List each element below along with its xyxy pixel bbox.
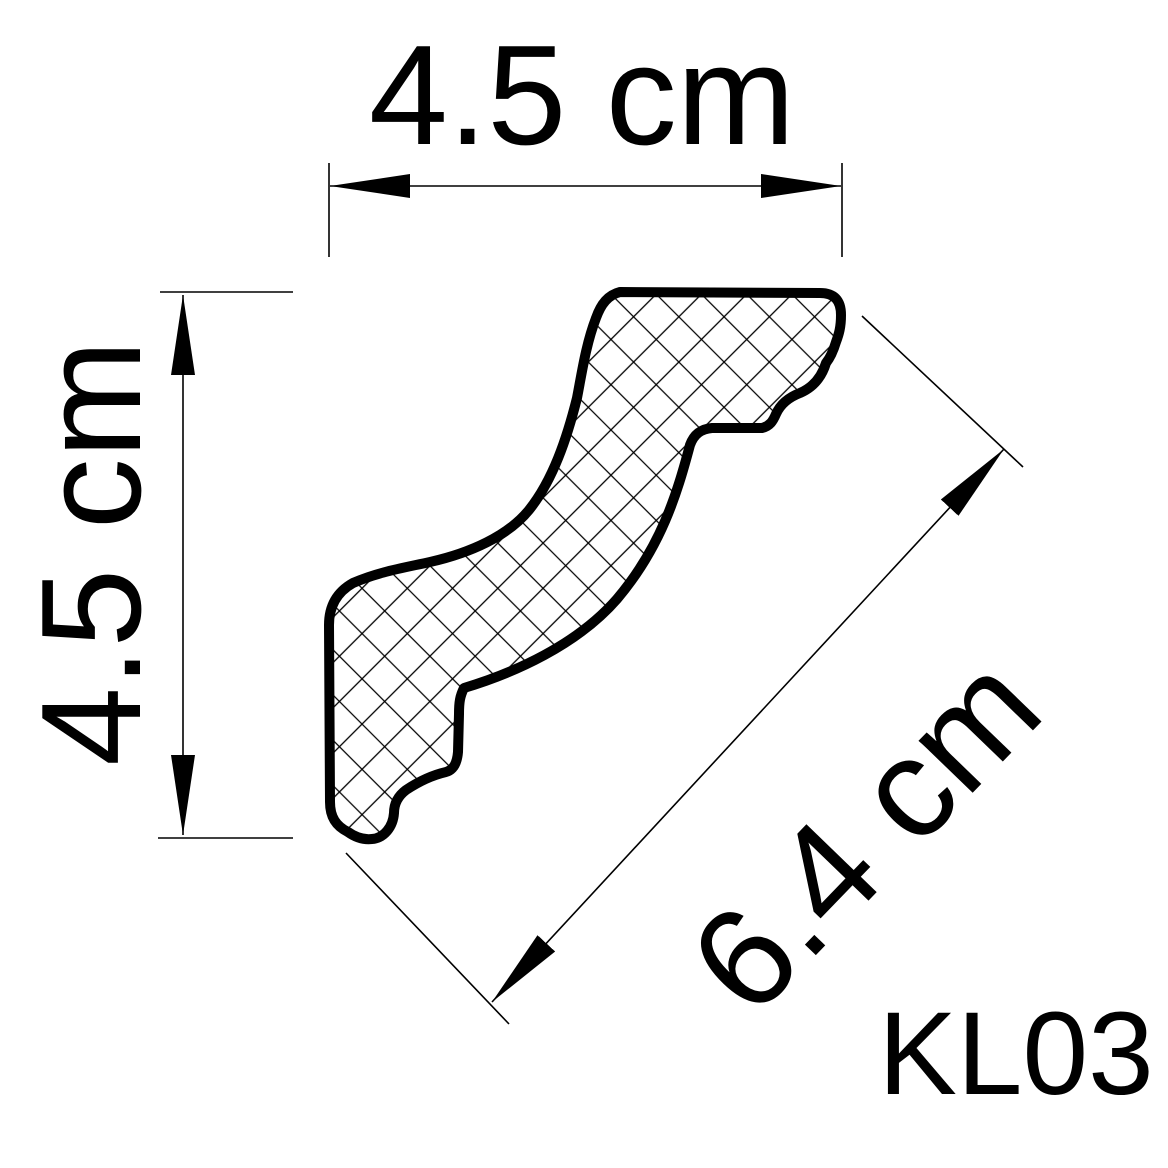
extension-line-diagonal-top [862, 316, 1023, 467]
dimension-label-top-width: 4.5 cm [369, 16, 795, 175]
dimension-top-width: 4.5 cm [329, 16, 842, 257]
dimension-label-left-height: 4.5 cm [12, 340, 171, 766]
extension-line-diagonal-bottom [346, 853, 509, 1024]
molding-profile-cross-section [329, 292, 841, 839]
dimension-label-diagonal-face: 6.4 cm [660, 626, 1070, 1043]
product-code-label: KL03 [878, 988, 1154, 1120]
technical-drawing: 4.5 cm 4.5 cm 6.4 cm KL03 [0, 0, 1168, 1168]
drawing-canvas: 4.5 cm 4.5 cm 6.4 cm KL03 [0, 0, 1168, 1168]
dimension-left-height: 4.5 cm [12, 292, 293, 838]
